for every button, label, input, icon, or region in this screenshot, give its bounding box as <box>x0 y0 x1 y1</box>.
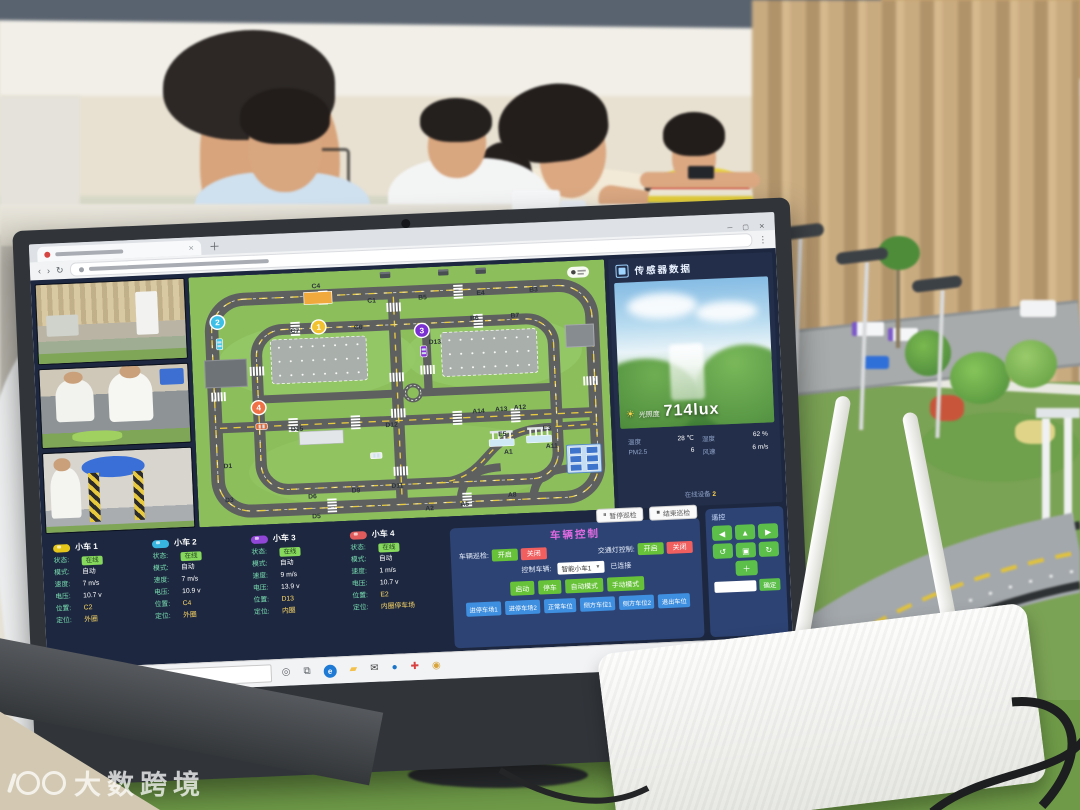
remote-key-button[interactable]: ◀ <box>712 525 733 541</box>
stop-patrol-button[interactable]: ⏹结束巡检 <box>649 505 697 521</box>
sensor-title: 传感器数据 <box>634 261 692 277</box>
vehicle-card: 小车 2状态:在线模式:自动速度:7 m/s电压:10.9 v位置:C4定位:外… <box>147 532 246 664</box>
camera-feed-column <box>35 278 196 534</box>
status-badge: 在线 <box>180 551 201 561</box>
model-truck-1 <box>852 322 884 336</box>
feed2-sign <box>159 368 183 385</box>
car-icon <box>152 539 169 548</box>
sensor-scene-image: ☀ 光照度 714lux <box>614 276 774 429</box>
status-badge: 在线 <box>81 555 102 565</box>
svg-text:C1: C1 <box>367 298 376 305</box>
car-icon <box>53 544 70 553</box>
remote-select[interactable] <box>714 580 756 593</box>
model-bush-2 <box>950 352 1010 404</box>
svg-text:A2: A2 <box>425 505 434 512</box>
car-icon <box>251 535 268 544</box>
remote-label: 遥控 <box>711 510 777 523</box>
photo-woman-hair <box>663 112 725 156</box>
svg-text:A1: A1 <box>504 449 513 456</box>
patrol-label: 车辆巡检: <box>459 551 489 562</box>
remote-key-button[interactable]: ▲ <box>735 524 756 540</box>
svg-text:A8: A8 <box>508 492 517 499</box>
sensor-row: 湿度62 % <box>702 430 768 443</box>
svg-text:D5: D5 <box>312 513 321 520</box>
map-parking-grid <box>566 444 602 473</box>
vehicle-name: 小车 1 <box>75 541 98 553</box>
feed1-ac-unit <box>135 291 159 335</box>
waterfall <box>669 343 705 400</box>
photo-scene: ✕ ＋ ─ ▢ ✕ ‹ › ↻ ⋮ <box>0 0 1080 810</box>
svg-text:D13: D13 <box>429 339 442 346</box>
pause-icon: ⏸ <box>603 512 607 520</box>
remote-plus-button[interactable]: ＋ <box>735 560 758 576</box>
sensor-footer: 在线设备 2 <box>618 485 783 509</box>
vehicle-name: 小车 4 <box>372 528 395 540</box>
svg-text:D6: D6 <box>308 493 317 500</box>
route-marker[interactable]: 4 <box>251 400 266 415</box>
drive-action-button[interactable]: 手动模式 <box>607 576 645 592</box>
svg-text:B3: B3 <box>529 286 538 293</box>
gantry-beam <box>1036 408 1080 418</box>
camera-feed-3[interactable] <box>42 447 195 534</box>
map-car[interactable] <box>370 452 382 458</box>
map-corner-button[interactable] <box>567 266 589 278</box>
remote-control-pad: 遥控 ◀▲▶↺▣↻ ＋ 确定 <box>705 506 789 637</box>
illuminance-readout: ☀ 光照度 714lux <box>625 401 719 423</box>
svg-text:E4: E4 <box>476 290 485 297</box>
svg-text:C4: C4 <box>311 283 320 290</box>
drive-action-button[interactable]: 自动模式 <box>565 578 603 594</box>
parking-action-button[interactable]: 侧方车位1 <box>580 596 616 612</box>
parking-action-button[interactable]: 进停车场2 <box>505 600 541 616</box>
model-bush-1 <box>905 330 951 376</box>
camera-feed-1[interactable] <box>35 278 188 365</box>
svg-text:D15: D15 <box>291 426 304 433</box>
model-car-blue <box>863 356 889 369</box>
feed2-person-2 <box>108 371 154 422</box>
parking-action-button[interactable]: 退出车位 <box>658 593 690 608</box>
traffic-map-panel[interactable]: 1234 C4C1B5E4B3C7C6B6B7D13D15D12A14A13A1… <box>188 259 615 527</box>
tab-favicon <box>44 251 50 257</box>
feed2-person-1 <box>55 379 95 423</box>
traffic-map: 1234 C4C1B5E4B3C7C6B6B7D13D15D12A14A13A1… <box>188 259 615 527</box>
vehicle-status-cards: 小车 1状态:在线模式:自动速度:7 m/s电压:10.7 v位置:C2定位:外… <box>48 523 447 668</box>
chip-icon <box>615 264 629 278</box>
model-flowers-red <box>930 395 964 421</box>
remote-confirm-button[interactable]: 确定 <box>759 578 781 591</box>
cortana-icon[interactable]: ◎ <box>281 666 290 680</box>
onedrive-icon[interactable]: ● <box>391 661 398 675</box>
watermark-text: 大数跨境 <box>74 763 206 802</box>
route-marker[interactable]: 1 <box>311 320 326 335</box>
svg-text:B5: B5 <box>418 294 427 301</box>
status-badge: 在线 <box>378 542 399 552</box>
svg-text:B6: B6 <box>470 315 479 322</box>
status-badge: 在线 <box>279 546 300 556</box>
connected-status: 已连接 <box>610 561 631 572</box>
mail-icon[interactable]: ✉ <box>370 662 379 676</box>
parking-action-button[interactable]: 正常车位 <box>544 598 576 613</box>
browser-icon[interactable]: ◉ <box>432 659 441 673</box>
svg-text:4: 4 <box>256 403 261 412</box>
url-smudge <box>88 259 268 270</box>
svg-text:E3: E3 <box>543 425 552 432</box>
tab-title-smudge <box>55 249 123 256</box>
model-car-white <box>1020 300 1056 317</box>
svg-text:C6: C6 <box>354 324 363 331</box>
new-tab-button[interactable]: ＋ <box>209 240 221 254</box>
taskbar-icons: ◎⧉e▰✉●✚◉ <box>281 659 441 680</box>
patrol-on-button[interactable]: 开启 <box>492 548 518 561</box>
webcam-dot <box>401 219 410 228</box>
vehicle-select[interactable]: 智能小车1▼ <box>557 561 604 575</box>
svg-text:D11: D11 <box>391 483 404 490</box>
feed3-striped-pole-left <box>88 472 100 521</box>
svg-text:B7: B7 <box>510 312 519 319</box>
man-blue-hair <box>240 88 330 144</box>
svg-text:D3: D3 <box>225 497 234 504</box>
svg-text:C7: C7 <box>290 328 299 335</box>
sensor-panel: 传感器数据 ☀ 光照度 714lux 温度28 <box>608 252 783 509</box>
feed3-striped-pole-right <box>133 471 145 520</box>
vehicle-card: 小车 3状态:在线模式:自动速度:9 m/s电压:13.9 v位置:D13定位:… <box>246 527 345 659</box>
traffic-light-off-button[interactable]: 关闭 <box>666 541 692 554</box>
svg-text:D1: D1 <box>223 463 232 470</box>
vehicle-name: 小车 3 <box>273 532 296 544</box>
remote-key-button[interactable]: ↻ <box>759 541 780 557</box>
map-car[interactable] <box>420 346 427 357</box>
phone <box>688 166 714 179</box>
vehicle-control-panel: ⏸暂停巡检 ⏹结束巡检 车辆控制 车辆巡检: 开启 关闭 交通灯控制: 开启 <box>450 518 705 649</box>
svg-text:A14: A14 <box>472 408 485 415</box>
traffic-light-label: 交通灯控制: <box>598 544 635 556</box>
refresh-icon[interactable]: ↻ <box>56 265 64 276</box>
map-car[interactable] <box>256 423 268 429</box>
svg-text:A12: A12 <box>514 404 527 411</box>
svg-text:A11: A11 <box>546 443 559 450</box>
man-center-hair <box>420 98 492 142</box>
sensor-row: PM2.56 <box>628 447 694 460</box>
pin-icon[interactable]: ✚ <box>410 660 419 674</box>
site-info-icon[interactable] <box>78 267 83 272</box>
sensor-row: 温度28 ℃ <box>628 434 694 447</box>
car-icon <box>350 531 367 540</box>
svg-text:A13: A13 <box>495 406 508 413</box>
svg-text:E5: E5 <box>498 431 507 438</box>
model-tree-trunk <box>896 258 900 348</box>
svg-text:D12: D12 <box>385 422 398 429</box>
tab-close-icon[interactable]: ✕ <box>188 244 194 252</box>
drive-action-button[interactable]: 停车 <box>538 580 562 595</box>
pause-patrol-button[interactable]: ⏸暂停巡检 <box>596 507 644 523</box>
dashboard-page: 1234 C4C1B5E4B3C7C6B6B7D13D15D12A14A13A1… <box>30 248 792 670</box>
parking-action-button[interactable]: 侧方车位2 <box>619 595 655 611</box>
model-bush-3 <box>1005 340 1057 388</box>
camera-feed-2[interactable] <box>38 362 191 449</box>
map-car[interactable] <box>216 339 223 350</box>
folder-icon[interactable]: ▰ <box>349 663 357 677</box>
task-view-icon[interactable]: ⧉ <box>303 665 311 679</box>
stop-icon: ⏹ <box>656 509 660 517</box>
watermark-logo-icon <box>10 771 66 795</box>
sun-icon: ☀ <box>626 409 635 420</box>
back-icon[interactable]: ‹ <box>38 266 41 276</box>
illuminance-value: 714lux <box>663 401 720 421</box>
drive-action-button[interactable]: 启动 <box>510 581 534 596</box>
screen: ✕ ＋ ─ ▢ ✕ ‹ › ↻ ⋮ <box>29 212 794 696</box>
vehicle-select-label: 控制车辆: <box>521 564 551 575</box>
vehicle-name: 小车 2 <box>174 536 197 548</box>
remote-key-button[interactable]: ↺ <box>713 543 734 559</box>
patrol-off-button[interactable]: 关闭 <box>521 547 547 560</box>
chevron-down-icon: ▼ <box>595 564 600 570</box>
traffic-light-on-button[interactable]: 开启 <box>637 542 663 555</box>
route-marker[interactable]: 2 <box>210 315 225 330</box>
remote-key-button[interactable]: ▣ <box>736 542 757 558</box>
svg-text:3: 3 <box>419 326 424 335</box>
svg-text:2: 2 <box>215 318 220 327</box>
illuminance-label: 光照度 <box>639 409 660 420</box>
feed3-person <box>50 467 82 519</box>
vehicle-card: 小车 4状态:在线模式:自动速度:1 m/s电压:10.7 v位置:E2定位:内… <box>344 523 443 655</box>
sensor-row: 风速6 m/s <box>702 443 768 456</box>
vehicle-card: 小车 1状态:在线模式:自动速度:7 m/s电压:10.7 v位置:C2定位:外… <box>48 536 147 668</box>
forward-icon[interactable]: › <box>47 266 50 276</box>
edge-icon[interactable]: e <box>323 664 337 678</box>
route-marker[interactable]: 3 <box>414 323 429 338</box>
watermark: 大数跨境 <box>10 763 206 802</box>
svg-text:A5: A5 <box>460 501 469 508</box>
svg-text:1: 1 <box>316 323 321 332</box>
svg-text:D9: D9 <box>352 487 361 494</box>
remote-key-button[interactable]: ▶ <box>758 523 779 539</box>
menu-icon[interactable]: ⋮ <box>758 234 767 245</box>
parking-action-button[interactable]: 进停车场1 <box>466 601 502 617</box>
